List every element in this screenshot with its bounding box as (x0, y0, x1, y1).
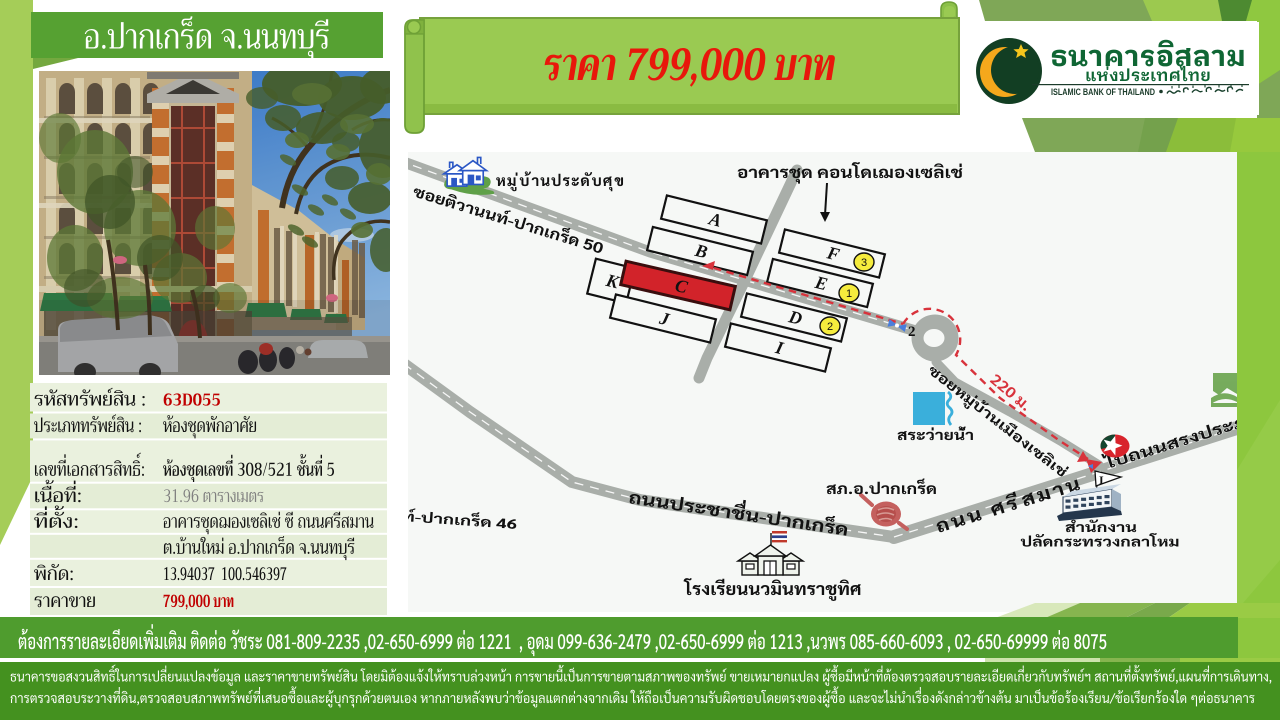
svg-text:3: 3 (861, 257, 867, 269)
svg-text:ISLAMIC BANK OF THAILAND: ISLAMIC BANK OF THAILAND (1051, 87, 1155, 98)
svg-text:1: 1 (846, 288, 852, 300)
svg-text:2: 2 (908, 324, 916, 340)
svg-text:2: 2 (827, 321, 833, 333)
svg-text:I: I (1099, 473, 1104, 487)
